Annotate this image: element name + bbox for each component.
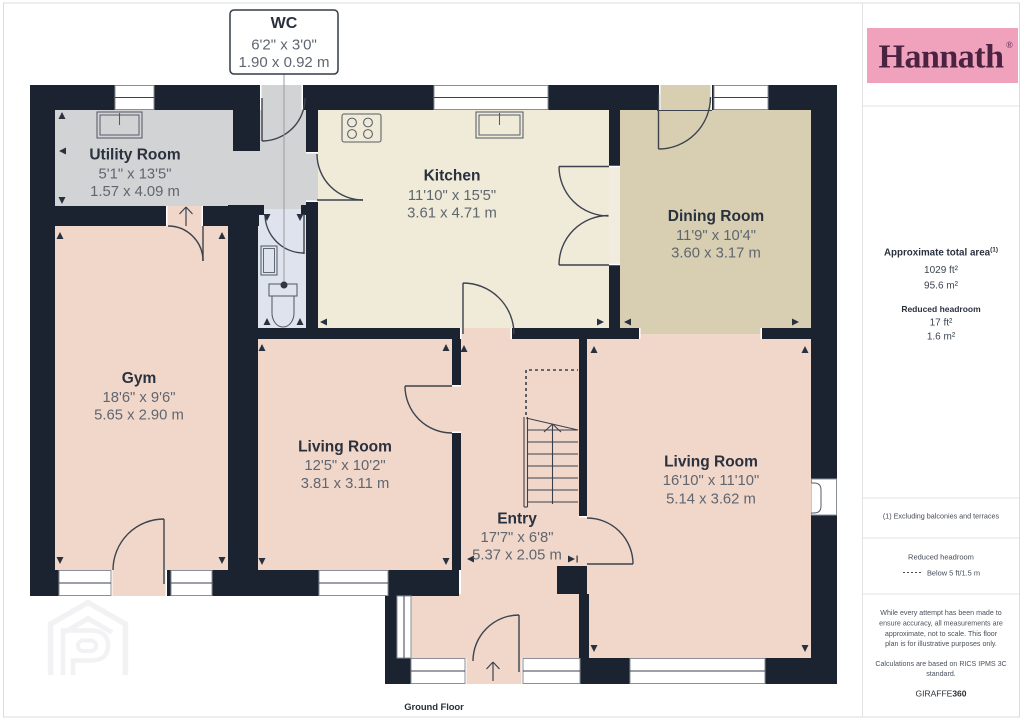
svg-text:Below 5 ft/1.5 m: Below 5 ft/1.5 m (927, 569, 980, 578)
svg-text:16'10" x 11'10": 16'10" x 11'10" (663, 473, 760, 489)
svg-text:Hannath: Hannath (879, 39, 1005, 76)
svg-text:While every attempt has been m: While every attempt has been made to (880, 609, 1002, 617)
svg-text:Ground Floor: Ground Floor (404, 702, 464, 713)
svg-text:17 ft²: 17 ft² (930, 318, 953, 329)
svg-text:3.61 x 4.71 m: 3.61 x 4.71 m (407, 206, 497, 222)
svg-text:1.57 x 4.09 m: 1.57 x 4.09 m (90, 184, 180, 200)
svg-text:WC: WC (271, 15, 298, 32)
svg-text:Utility Room: Utility Room (89, 147, 180, 164)
svg-text:12'5" x 10'2": 12'5" x 10'2" (304, 458, 385, 474)
svg-text:11'9" x 10'4": 11'9" x 10'4" (676, 228, 756, 244)
svg-text:18'6" x 9'6": 18'6" x 9'6" (103, 390, 176, 406)
svg-text:Approximate total area(1): Approximate total area(1) (884, 246, 998, 259)
svg-text:Gym: Gym (122, 370, 156, 387)
svg-text:3.60 x 3.17 m: 3.60 x 3.17 m (671, 246, 761, 262)
svg-text:1.90 x 0.92 m: 1.90 x 0.92 m (239, 54, 330, 71)
svg-text:Reduced headroom: Reduced headroom (908, 553, 974, 562)
svg-text:ensure accuracy, all measureme: ensure accuracy, all measurements are (879, 620, 1003, 628)
svg-text:5.37 x 2.05 m: 5.37 x 2.05 m (472, 548, 562, 564)
svg-text:11'10" x 15'5": 11'10" x 15'5" (408, 188, 496, 204)
svg-text:17'7" x 6'8": 17'7" x 6'8" (481, 530, 554, 546)
svg-text:Dining Room: Dining Room (668, 208, 764, 225)
svg-text:plan is for illustrative purpo: plan is for illustrative purposes only. (885, 640, 997, 648)
svg-text:1029 ft²: 1029 ft² (924, 265, 959, 276)
svg-text:6'2" x 3'0": 6'2" x 3'0" (251, 37, 317, 54)
svg-text:(1) Excluding balconies and te: (1) Excluding balconies and terraces (883, 512, 1000, 521)
svg-text:standard.: standard. (926, 670, 956, 678)
svg-text:Reduced headroom: Reduced headroom (901, 304, 981, 314)
svg-text:Living Room: Living Room (298, 439, 392, 456)
svg-text:®: ® (1006, 40, 1013, 50)
svg-text:5.14 x 3.62 m: 5.14 x 3.62 m (666, 492, 756, 508)
svg-text:approximate, not to scale. Thi: approximate, not to scale. This floor (885, 630, 998, 638)
svg-text:5.65 x 2.90 m: 5.65 x 2.90 m (94, 408, 184, 424)
svg-text:GIRAFFE360: GIRAFFE360 (915, 689, 966, 699)
svg-text:Entry: Entry (497, 511, 537, 528)
svg-text:3.81 x 3.11 m: 3.81 x 3.11 m (301, 476, 390, 492)
svg-text:Calculations are based on RICS: Calculations are based on RICS IPMS 3C (875, 660, 1006, 668)
svg-text:Living Room: Living Room (664, 454, 758, 471)
svg-text:Kitchen: Kitchen (424, 168, 481, 185)
svg-text:5'1" x 13'5": 5'1" x 13'5" (99, 167, 172, 183)
svg-text:1.6 m²: 1.6 m² (927, 332, 956, 343)
svg-text:95.6 m²: 95.6 m² (924, 281, 959, 292)
